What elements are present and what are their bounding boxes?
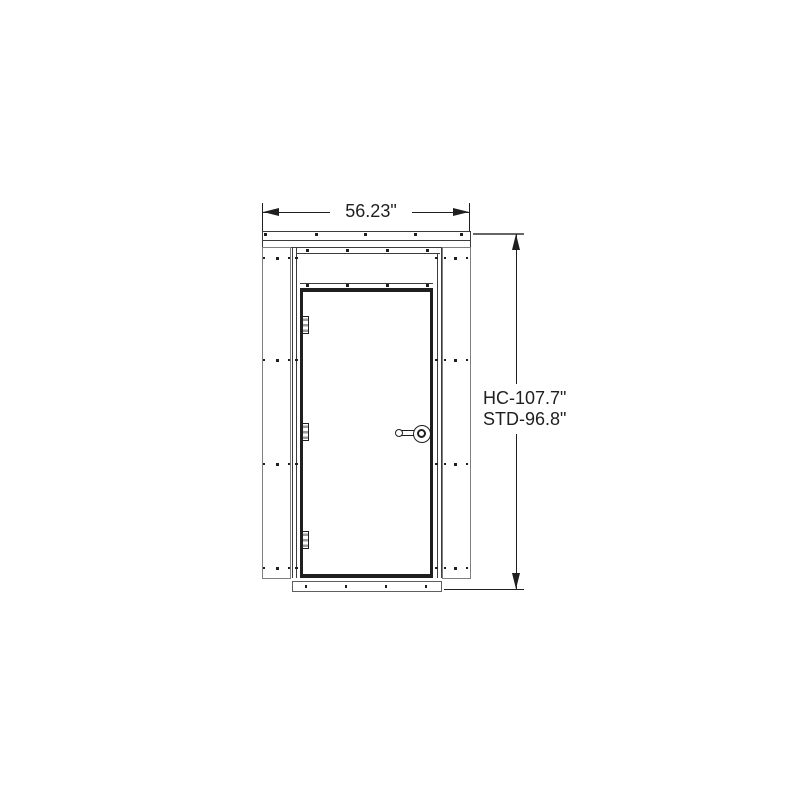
fastener-dot <box>386 249 389 252</box>
fastener-dot <box>454 257 457 260</box>
fastener-dot <box>454 463 457 466</box>
fastener-dot <box>288 257 290 259</box>
fastener-dot <box>288 359 290 361</box>
fastener-dot <box>276 257 279 260</box>
width-dimension-label: 56.23" <box>330 201 412 222</box>
header-board-inner-line <box>262 240 470 241</box>
fastener-dot <box>263 567 265 569</box>
fastener-dot <box>435 257 438 260</box>
width-extension-tick-right <box>469 203 470 231</box>
fastener-dot <box>385 585 388 588</box>
fastener-dot <box>435 463 438 466</box>
fastener-dot <box>315 233 318 236</box>
fastener-dot <box>263 463 265 465</box>
fastener-dot <box>295 463 298 466</box>
height-dimension-label: HC-107.7" STD-96.8" <box>483 388 566 430</box>
fastener-dot <box>264 233 267 236</box>
height-dimension-line-top <box>516 234 517 384</box>
fastener-dot <box>444 359 446 361</box>
width-arrow-left-icon <box>263 208 279 216</box>
fastener-dot <box>454 359 457 362</box>
fastener-dot <box>466 359 468 361</box>
fastener-dot <box>386 284 389 287</box>
fastener-dot <box>466 463 468 465</box>
fastener-dot <box>295 257 298 260</box>
fastener-dot <box>305 585 308 588</box>
fastener-dot <box>466 567 468 569</box>
side-panel-left <box>262 247 292 579</box>
jamb-line-right-inner <box>437 247 438 578</box>
sill-plate <box>292 581 442 592</box>
fastener-dot <box>454 567 457 570</box>
fastener-dot <box>426 284 429 287</box>
fastener-dot <box>346 249 349 252</box>
fastener-dot <box>426 249 429 252</box>
jamb-line-left-inner <box>296 247 297 578</box>
fastener-dot <box>414 233 417 236</box>
fastener-dot <box>444 567 446 569</box>
frame-head-strip <box>297 247 440 254</box>
height-dimension-line-bottom <box>516 434 517 589</box>
side-panel-right <box>442 247 471 579</box>
fastener-dot <box>306 249 309 252</box>
door-handle-spindle <box>417 429 426 438</box>
fastener-dot <box>276 463 279 466</box>
door-hinge <box>302 531 309 549</box>
fastener-dot <box>276 567 279 570</box>
fastener-dot <box>466 257 468 259</box>
fastener-dot <box>295 567 298 570</box>
height-arrow-down-icon <box>512 573 520 589</box>
fastener-dot <box>288 567 290 569</box>
height-dimension-label-std: STD-96.8" <box>483 409 566 430</box>
jamb-line-left-outer <box>292 247 293 578</box>
fastener-dot <box>263 257 265 259</box>
jamb-line-right-outer <box>441 247 442 578</box>
fastener-dot <box>306 284 309 287</box>
door-elevation-drawing: 56.23" HC-107.7" STD-96.8" <box>0 0 800 800</box>
width-arrow-right-icon <box>453 208 469 216</box>
transom-bar <box>300 283 433 292</box>
fastener-dot <box>345 585 348 588</box>
door-hinge <box>302 316 309 334</box>
door-handle-knob <box>395 429 403 437</box>
fastener-dot <box>460 233 463 236</box>
fastener-dot <box>346 284 349 287</box>
fastener-dot <box>435 567 438 570</box>
fastener-dot <box>295 359 298 362</box>
fastener-dot <box>444 257 446 259</box>
fastener-dot <box>435 359 438 362</box>
fastener-dot <box>444 463 446 465</box>
fastener-dot <box>276 359 279 362</box>
fastener-dot <box>364 233 367 236</box>
fastener-dot <box>425 585 428 588</box>
fastener-dot <box>263 359 265 361</box>
door-hinge <box>302 423 309 441</box>
height-dimension-label-hc: HC-107.7" <box>483 388 566 409</box>
fastener-dot <box>288 463 290 465</box>
height-arrow-up-icon <box>512 234 520 250</box>
